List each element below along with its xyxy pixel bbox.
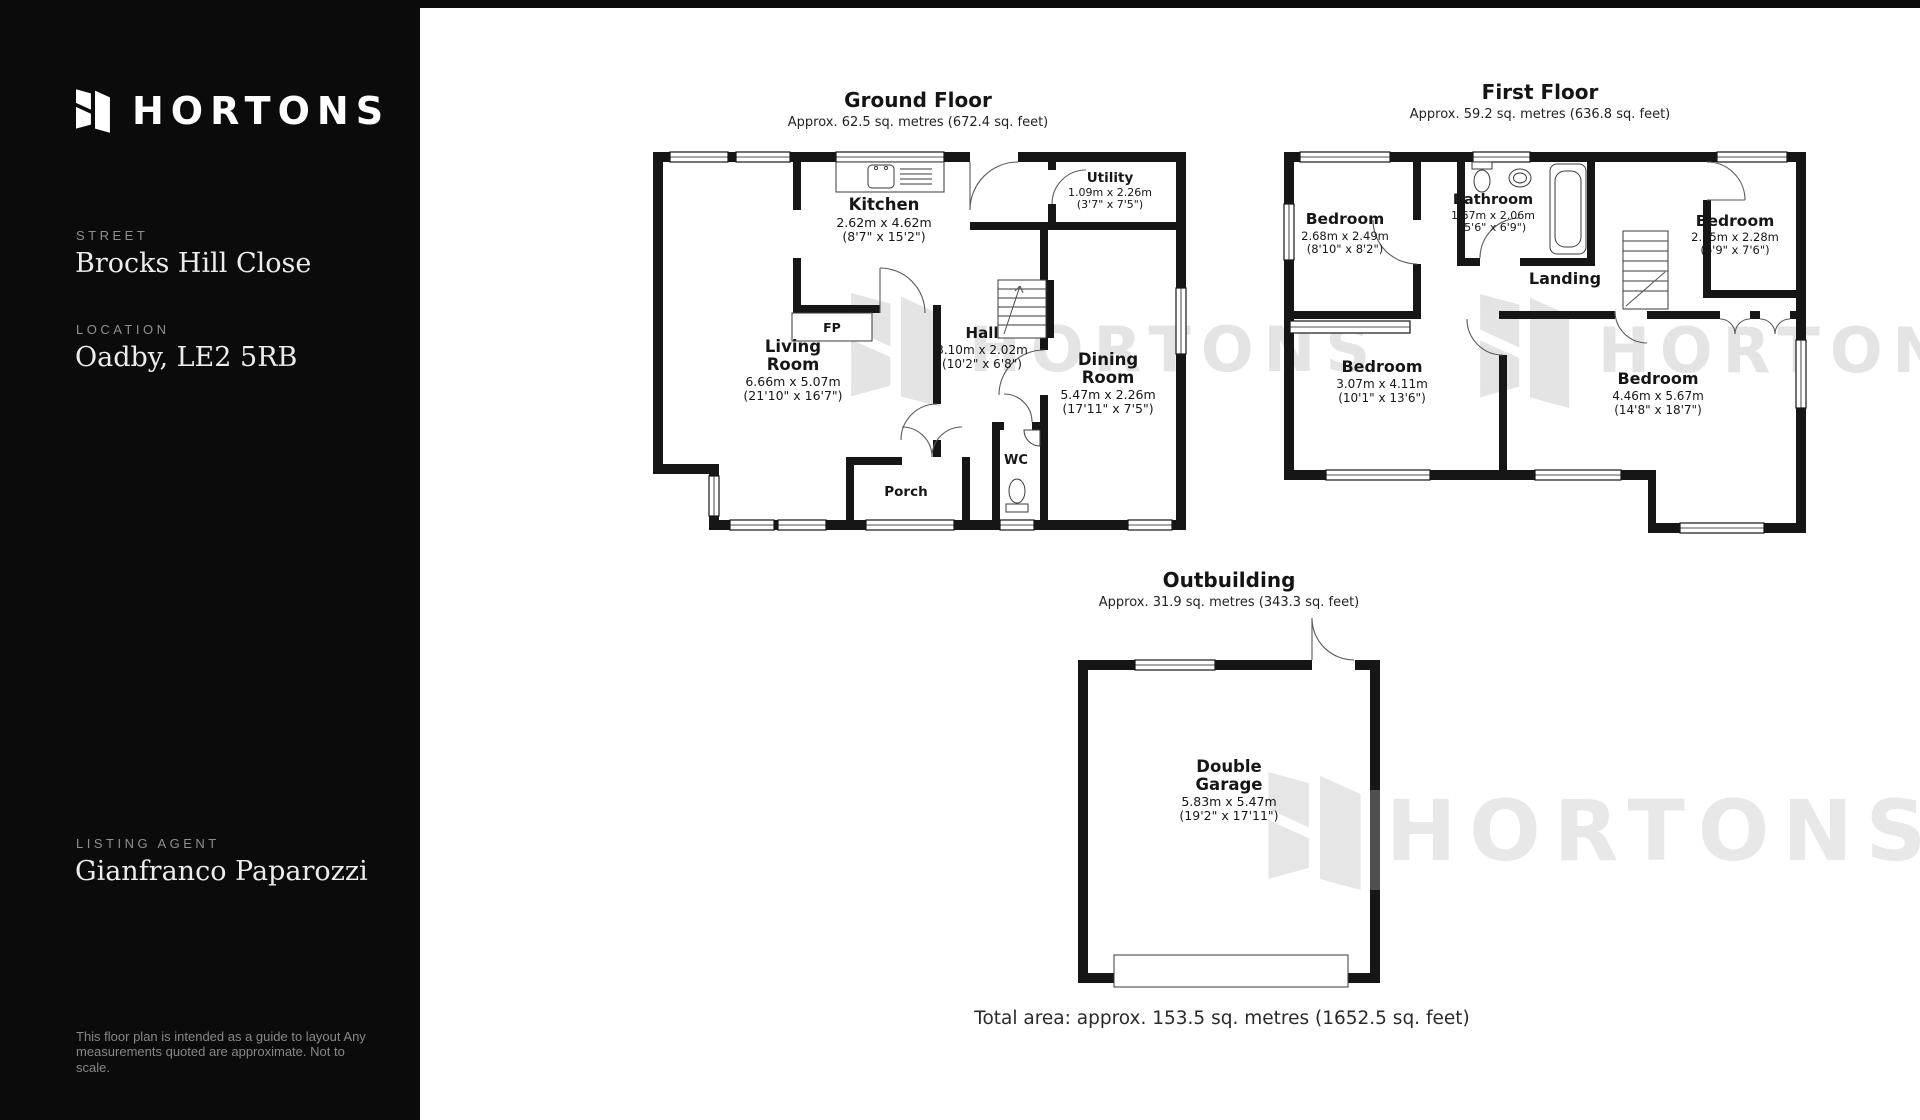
bedroom-br-label: Bedroom bbox=[1617, 369, 1698, 388]
ground-floor-stairs bbox=[998, 280, 1046, 338]
kitchen-metric: 2.62m x 4.62m bbox=[836, 215, 931, 230]
bedroom-tr-metric: 2.05m x 2.28m bbox=[1691, 230, 1779, 244]
garage-label-2: Garage bbox=[1196, 775, 1263, 794]
outbuilding-title: Outbuilding bbox=[1029, 568, 1429, 592]
hortons-logo-icon bbox=[76, 88, 114, 134]
dining-room-metric: 5.47m x 2.26m bbox=[1060, 387, 1155, 402]
first-floor-plan: Bedroom 2.68m x 2.49m (8'10" x 8'2") Bat… bbox=[1280, 140, 1840, 540]
ground-floor-area: Approx. 62.5 sq. metres (672.4 sq. feet) bbox=[640, 115, 1196, 130]
utility-imperial: (3'7" x 7'5") bbox=[1077, 198, 1143, 211]
bedroom-bl-imperial: (10'1" x 13'6") bbox=[1338, 391, 1426, 405]
total-area: Total area: approx. 153.5 sq. metres (16… bbox=[772, 1008, 1672, 1029]
living-room-label-2: Room bbox=[767, 355, 820, 374]
disclaimer-line-2: measurements quoted are approximate. Not… bbox=[76, 1044, 376, 1075]
garage-metric: 5.83m x 5.47m bbox=[1181, 794, 1276, 809]
dining-room-imperial: (17'11" x 7'5") bbox=[1062, 401, 1153, 416]
landing-label: Landing bbox=[1529, 269, 1601, 288]
bathroom-fixtures bbox=[1472, 162, 1586, 254]
bedroom-br-imperial: (14'8" x 18'7") bbox=[1614, 403, 1702, 417]
location-label: LOCATION bbox=[76, 322, 170, 337]
bedroom-bl-label: Bedroom bbox=[1341, 357, 1422, 376]
first-floor-title: First Floor bbox=[1280, 80, 1800, 104]
outbuilding-labels: Double Garage 5.83m x 5.47m (19'2" x 17'… bbox=[1179, 757, 1278, 823]
garage-imperial: (19'2" x 17'11") bbox=[1179, 808, 1278, 823]
kitchen-label: Kitchen bbox=[849, 195, 920, 214]
hall-label: Hall bbox=[966, 324, 999, 342]
outbuilding-plan: Double Garage 5.83m x 5.47m (19'2" x 17'… bbox=[1050, 615, 1450, 1005]
dining-room-label-1: Dining bbox=[1078, 350, 1138, 369]
kitchen-sink bbox=[836, 162, 944, 192]
first-floor-area: Approx. 59.2 sq. metres (636.8 sq. feet) bbox=[1280, 107, 1800, 122]
porch-label: Porch bbox=[884, 484, 927, 500]
ground-floor-plan: FP Kitchen 2.62m x 4.62m (8'7" x 15'2") … bbox=[640, 140, 1200, 540]
outbuilding-title-block: Outbuilding Approx. 31.9 sq. metres (343… bbox=[1029, 568, 1429, 610]
utility-label: Utility bbox=[1087, 170, 1134, 186]
brand-name: HORTONS bbox=[132, 92, 390, 130]
first-floor-stairs bbox=[1623, 231, 1668, 309]
hall-metric: 3.10m x 2.02m bbox=[936, 343, 1028, 357]
location-value: Oadby, LE2 5RB bbox=[75, 342, 297, 373]
disclaimer-line-1: This floor plan is intended as a guide t… bbox=[76, 1029, 376, 1044]
garage-door bbox=[1114, 955, 1348, 987]
first-floor-title-block: First Floor Approx. 59.2 sq. metres (636… bbox=[1280, 80, 1800, 122]
outbuilding-wall-shaded bbox=[1370, 790, 1380, 890]
ground-floor-title-block: Ground Floor Approx. 62.5 sq. metres (67… bbox=[640, 88, 1196, 130]
sidebar: HORTONS STREET Brocks Hill Close LOCATIO… bbox=[0, 0, 420, 1120]
bathroom-label: Bathroom bbox=[1453, 192, 1533, 208]
street-label: STREET bbox=[76, 228, 148, 243]
brand: HORTONS bbox=[76, 88, 390, 134]
bedroom-tr-label: Bedroom bbox=[1696, 212, 1775, 230]
bedroom-bl-metric: 3.07m x 4.11m bbox=[1336, 377, 1428, 391]
living-room-label-1: Living bbox=[765, 337, 821, 356]
watermark-text: HORTONS bbox=[1386, 789, 1920, 873]
fireplace-label: FP bbox=[823, 320, 841, 335]
bedroom-tl-metric: 2.68m x 2.49m bbox=[1301, 229, 1389, 243]
bathroom-imperial: (5'6" x 6'9") bbox=[1460, 221, 1526, 234]
bedroom-tr-imperial: (6'9" x 7'6") bbox=[1700, 243, 1769, 257]
listing-agent-label: LISTING AGENT bbox=[76, 836, 220, 851]
bedroom-br-metric: 4.46m x 5.67m bbox=[1612, 389, 1704, 403]
living-room-metric: 6.66m x 5.07m bbox=[745, 374, 840, 389]
street-value: Brocks Hill Close bbox=[75, 248, 311, 279]
wc-fixtures bbox=[1006, 430, 1040, 512]
kitchen-imperial: (8'7" x 15'2") bbox=[842, 229, 925, 244]
first-floor-labels: Bedroom 2.68m x 2.49m (8'10" x 8'2") Bat… bbox=[1301, 192, 1779, 417]
living-room-imperial: (21'10" x 16'7") bbox=[743, 388, 842, 403]
disclaimer: This floor plan is intended as a guide t… bbox=[76, 1029, 376, 1075]
wc-label: WC bbox=[1004, 453, 1028, 468]
ground-floor-title: Ground Floor bbox=[640, 88, 1196, 112]
outbuilding-area: Approx. 31.9 sq. metres (343.3 sq. feet) bbox=[1029, 595, 1429, 610]
garage-label-1: Double bbox=[1196, 757, 1261, 776]
bedroom-tl-label: Bedroom bbox=[1306, 210, 1385, 228]
listing-agent-value: Gianfranco Paparozzi bbox=[75, 856, 368, 887]
hall-imperial: (10'2" x 6'8") bbox=[942, 357, 1022, 371]
outbuilding-windows bbox=[1135, 660, 1215, 670]
dining-room-label-2: Room bbox=[1082, 368, 1135, 387]
outbuilding-doors bbox=[1312, 618, 1354, 660]
bedroom-tl-imperial: (8'10" x 8'2") bbox=[1307, 242, 1384, 256]
